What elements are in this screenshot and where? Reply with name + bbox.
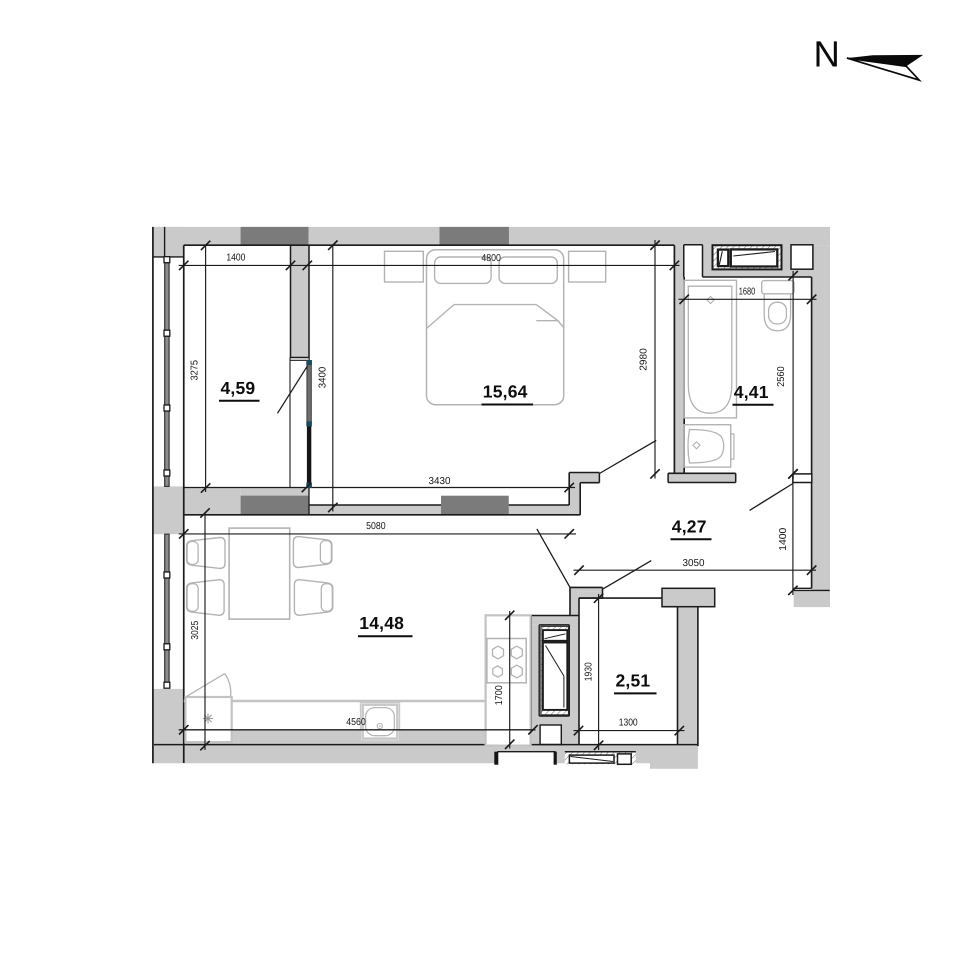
svg-text:4,59: 4,59 xyxy=(221,378,256,398)
svg-text:4,41: 4,41 xyxy=(734,382,769,402)
svg-text:2,51: 2,51 xyxy=(616,670,651,690)
svg-text:3400: 3400 xyxy=(318,366,329,388)
svg-text:1400: 1400 xyxy=(226,253,245,264)
svg-text:1700: 1700 xyxy=(494,685,505,705)
svg-text:15,64: 15,64 xyxy=(483,382,528,402)
svg-text:4,27: 4,27 xyxy=(672,516,707,536)
svg-text:4560: 4560 xyxy=(346,717,366,728)
svg-text:3025: 3025 xyxy=(190,620,201,639)
svg-text:4800: 4800 xyxy=(481,253,501,264)
svg-text:1930: 1930 xyxy=(583,662,594,681)
svg-text:1300: 1300 xyxy=(619,717,638,728)
svg-text:5080: 5080 xyxy=(366,521,386,532)
svg-text:3430: 3430 xyxy=(429,476,451,487)
svg-text:3050: 3050 xyxy=(683,558,705,569)
svg-text:1680: 1680 xyxy=(739,286,756,297)
svg-text:N: N xyxy=(814,34,840,75)
svg-text:2980: 2980 xyxy=(639,348,650,371)
svg-text:1400: 1400 xyxy=(778,527,789,550)
svg-text:14,48: 14,48 xyxy=(359,613,404,633)
svg-text:3275: 3275 xyxy=(189,360,200,381)
svg-text:2560: 2560 xyxy=(776,366,787,387)
